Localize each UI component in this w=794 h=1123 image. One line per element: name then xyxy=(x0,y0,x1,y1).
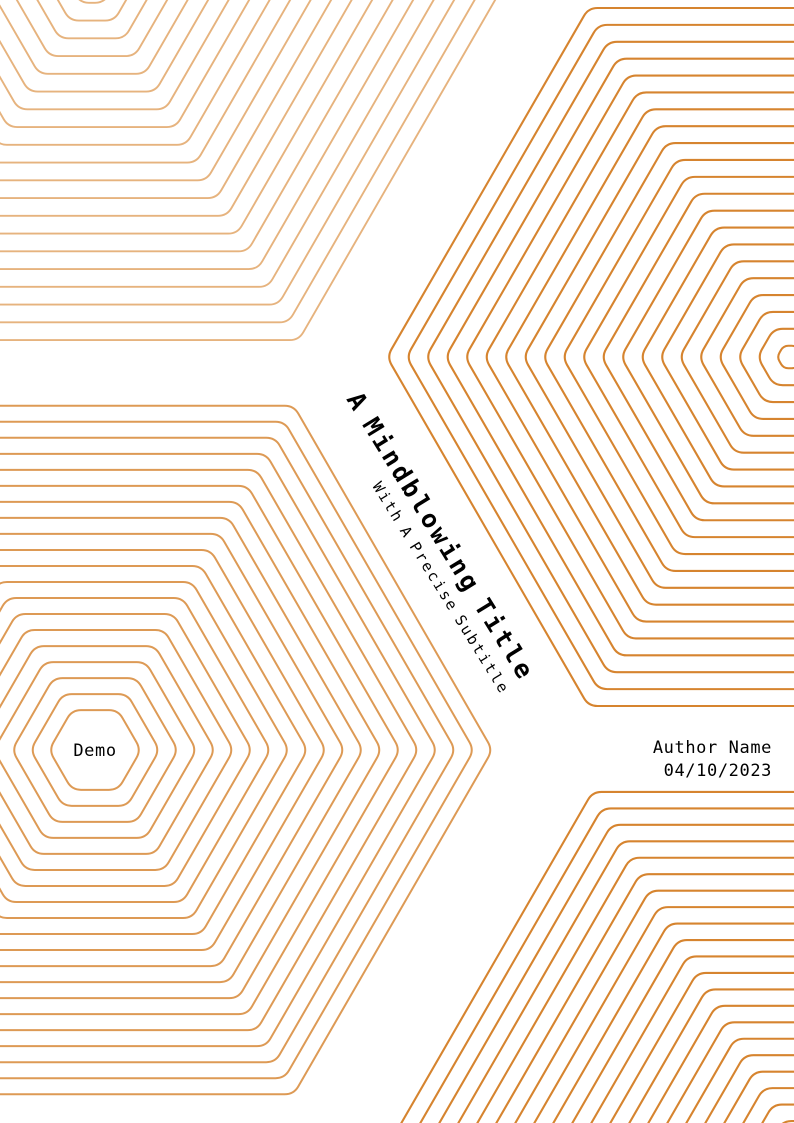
hexagon-ring xyxy=(0,582,287,918)
hexagon-ring xyxy=(623,211,794,504)
hexagon-ring xyxy=(0,438,453,1062)
hexagon-background: A Mindblowing Title With A Precise Subti… xyxy=(0,0,794,1123)
hexagon-ring xyxy=(0,0,503,340)
hexagon-ring xyxy=(0,550,324,950)
hexagon-ring xyxy=(740,312,794,402)
hexagon-ring xyxy=(526,126,794,588)
hexagon-group-bottom-right xyxy=(382,792,794,1123)
hexagon-ring xyxy=(29,0,155,38)
hexagon-ring xyxy=(553,940,794,1123)
author-name: Author Name xyxy=(653,738,772,758)
hexagon-ring xyxy=(506,109,794,604)
hexagon-ring xyxy=(0,0,237,109)
hexagon-ring xyxy=(448,59,794,656)
hexagon-ring xyxy=(701,278,794,436)
hexagon-group-top-left xyxy=(0,0,503,340)
hexagon-ring xyxy=(0,0,319,180)
hexagon-ring xyxy=(0,0,298,163)
hexagon-ring xyxy=(0,0,196,74)
hexagon-ring xyxy=(0,0,462,305)
hexagon-ring xyxy=(0,566,305,934)
hexagon-ring xyxy=(743,1105,794,1123)
hexagon-ring xyxy=(0,470,416,1030)
hexagon-ring xyxy=(0,502,379,998)
hexagon-ring xyxy=(0,0,442,287)
hexagon-ring xyxy=(721,295,794,419)
hexagon-ring xyxy=(604,194,794,521)
hexagon-ring xyxy=(705,1072,794,1123)
hexagon-ring xyxy=(70,0,114,3)
hexagon-ring xyxy=(760,329,794,385)
hexagon-ring xyxy=(643,228,794,487)
hexagon-ring xyxy=(629,1006,794,1123)
title-page: A Mindblowing Title With A Precise Subti… xyxy=(0,0,794,1123)
hexagon-pattern-layer xyxy=(0,0,794,1123)
hexagon-ring xyxy=(0,0,421,269)
document-date: 04/10/2023 xyxy=(664,761,772,781)
hexagon-ring xyxy=(0,0,360,216)
hexagon-ring xyxy=(401,808,794,1123)
hexagon-ring xyxy=(0,454,435,1046)
hexagon-ring xyxy=(778,346,794,369)
demo-label: Demo xyxy=(73,741,116,761)
hexagon-ring xyxy=(9,0,176,56)
